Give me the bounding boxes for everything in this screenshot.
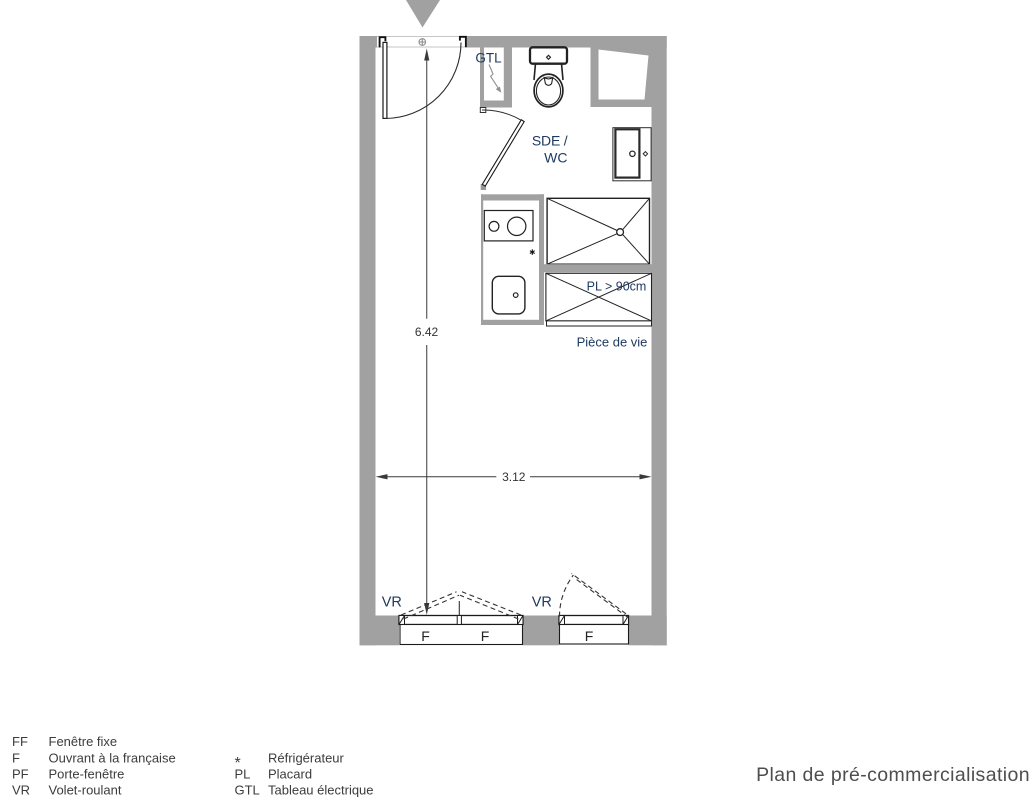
svg-text:SDE /: SDE / — [532, 133, 568, 149]
svg-text:VR: VR — [12, 783, 30, 798]
svg-text:WC: WC — [544, 150, 567, 166]
svg-text:VR: VR — [532, 595, 552, 611]
svg-text:F: F — [585, 628, 594, 644]
svg-text:Porte-fenêtre: Porte-fenêtre — [49, 767, 125, 782]
svg-text:PL > 90cm: PL > 90cm — [587, 280, 647, 294]
svg-text:Ouvrant à la française: Ouvrant à la française — [49, 751, 176, 766]
svg-text:Réfrigérateur: Réfrigérateur — [268, 751, 345, 766]
svg-text:F: F — [481, 628, 490, 644]
svg-text:Placard: Placard — [268, 767, 312, 782]
svg-text:VR: VR — [382, 595, 402, 611]
svg-text:GTL: GTL — [235, 783, 260, 798]
svg-text:PL: PL — [235, 767, 251, 782]
svg-text:F: F — [421, 628, 430, 644]
svg-text:Tableau électrique: Tableau électrique — [268, 783, 374, 798]
svg-text:F: F — [12, 751, 20, 766]
svg-text:Fenêtre fixe: Fenêtre fixe — [49, 734, 118, 749]
svg-text:PF: PF — [12, 767, 29, 782]
svg-text:GTL: GTL — [475, 51, 502, 66]
svg-text:FF: FF — [12, 734, 28, 749]
svg-text:Volet-roulant: Volet-roulant — [49, 783, 122, 798]
svg-text:Pièce de vie: Pièce de vie — [577, 335, 648, 350]
svg-text:6.42: 6.42 — [415, 325, 439, 339]
svg-text:Plan de pré-commercialisation: Plan de pré-commercialisation — [756, 764, 1030, 786]
svg-text:3.12: 3.12 — [502, 470, 526, 484]
